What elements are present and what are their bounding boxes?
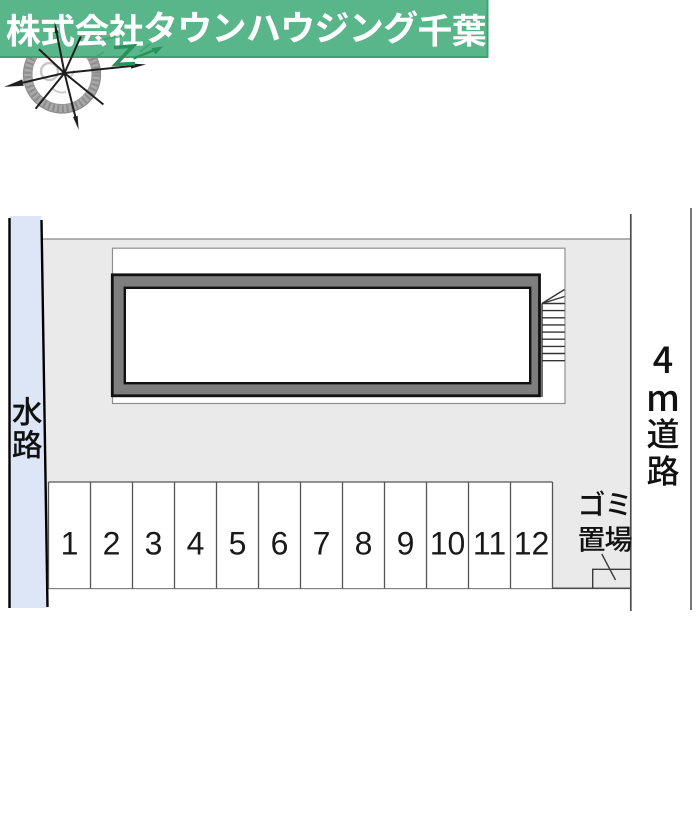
svg-text:6: 6 bbox=[271, 526, 289, 562]
svg-text:1: 1 bbox=[61, 526, 79, 562]
svg-text:11: 11 bbox=[473, 526, 506, 562]
svg-text:3: 3 bbox=[145, 526, 163, 562]
svg-text:7: 7 bbox=[313, 526, 331, 562]
svg-text:12: 12 bbox=[514, 526, 550, 562]
svg-text:2: 2 bbox=[103, 526, 121, 562]
svg-text:8: 8 bbox=[355, 526, 373, 562]
svg-text:10: 10 bbox=[430, 526, 466, 562]
svg-text:9: 9 bbox=[397, 526, 415, 562]
svg-text:5: 5 bbox=[229, 526, 247, 562]
svg-text:4: 4 bbox=[187, 526, 205, 562]
